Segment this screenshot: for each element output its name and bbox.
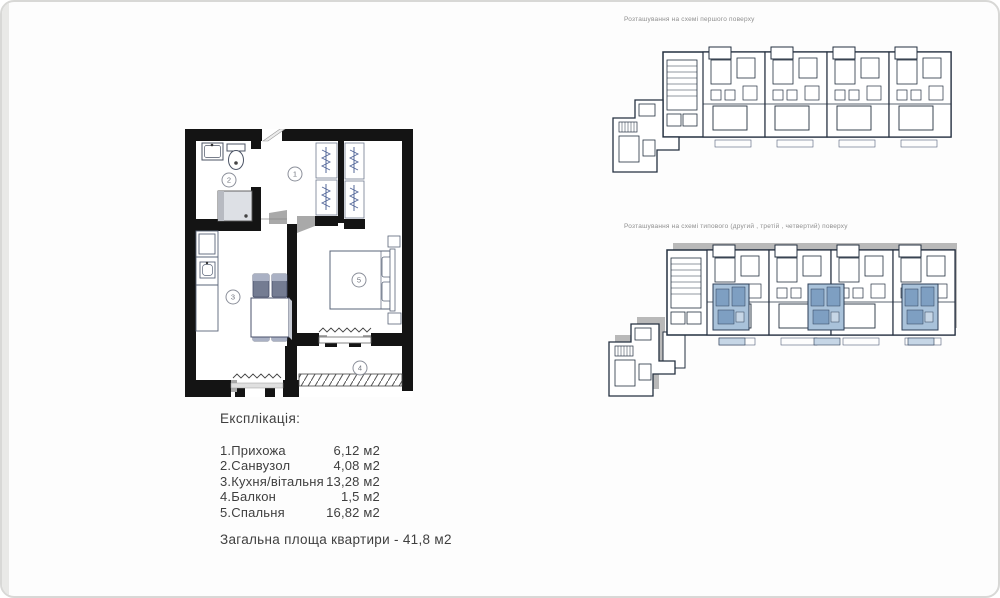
document-page: 1 2 3 4 5 Експлікація: 1.Прихожа 6,12 м2… bbox=[0, 0, 1000, 598]
room-name: 1.Прихожа bbox=[220, 443, 286, 458]
apartment-floor-plan: 1 2 3 4 5 bbox=[185, 129, 413, 397]
explication-title: Експлікація: bbox=[220, 411, 300, 426]
room-area: 16,82 м2 bbox=[326, 505, 380, 520]
dining-table bbox=[251, 298, 289, 337]
room-area: 1,5 м2 bbox=[341, 489, 380, 504]
first-floor-scheme-label: Розташування на схемі першого поверху bbox=[624, 16, 755, 23]
room-name: 4.Балкон bbox=[220, 489, 276, 504]
balcony-railing-hatch bbox=[299, 374, 402, 386]
explication-row: 3.Кухня/вітальня 13,28 м2 bbox=[220, 474, 380, 489]
explication-row: 1.Прихожа 6,12 м2 bbox=[220, 443, 380, 458]
room-number-2: 2 bbox=[227, 176, 231, 185]
room-area: 4,08 м2 bbox=[334, 458, 380, 473]
toilet-icon bbox=[227, 144, 245, 151]
balcony-window bbox=[319, 337, 371, 343]
room-area: 13,28 м2 bbox=[326, 474, 380, 489]
room-number-3: 3 bbox=[231, 293, 235, 302]
total-area-text: Загальна площа квартири - 41,8 м2 bbox=[220, 532, 452, 547]
room-number-4: 4 bbox=[358, 364, 362, 373]
first-floor-scheme bbox=[605, 40, 953, 190]
room-name: 3.Кухня/вітальня bbox=[220, 474, 324, 489]
room-name: 2.Санвузол bbox=[220, 458, 290, 473]
nightstand bbox=[388, 236, 400, 247]
room-number-1: 1 bbox=[293, 170, 297, 179]
page-edge-shade bbox=[2, 2, 9, 598]
nightstand bbox=[388, 313, 401, 324]
typical-floor-scheme-label: Розташування на схемі типового (другий ,… bbox=[624, 223, 848, 230]
typical-floor-scheme bbox=[605, 232, 957, 400]
room-number-5: 5 bbox=[357, 276, 361, 285]
kitchen-window bbox=[231, 383, 283, 388]
explication-row: 4.Балкон 1,5 м2 bbox=[220, 489, 380, 504]
room-name: 5.Спальня bbox=[220, 505, 285, 520]
explication-row: 5.Спальня 16,82 м2 bbox=[220, 505, 380, 520]
explication-row: 2.Санвузол 4,08 м2 bbox=[220, 458, 380, 473]
kitchen-counter bbox=[196, 231, 218, 331]
highlighted-apartment-units bbox=[713, 284, 938, 345]
explication-table: 1.Прихожа 6,12 м2 2.Санвузол 4,08 м2 3.К… bbox=[220, 443, 380, 520]
room-area: 6,12 м2 bbox=[334, 443, 380, 458]
